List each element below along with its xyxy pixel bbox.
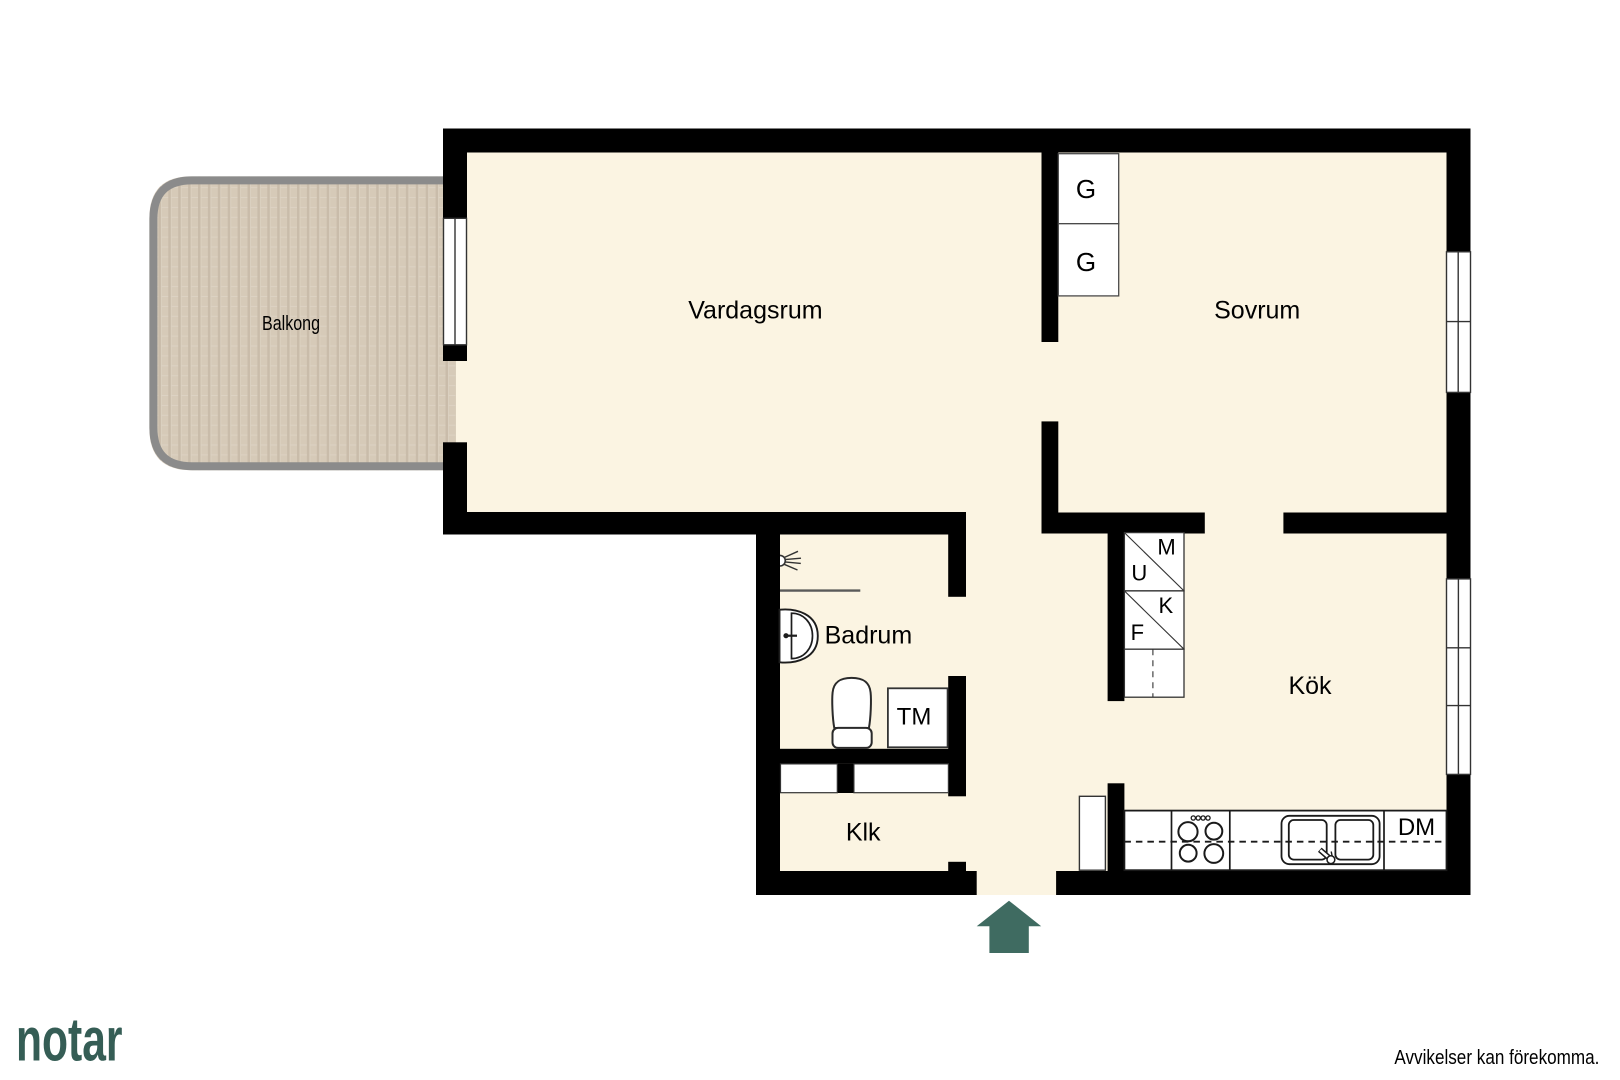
svg-text:Sovrum: Sovrum (1214, 297, 1300, 325)
svg-text:K: K (1158, 593, 1173, 618)
svg-text:M: M (1157, 535, 1175, 560)
svg-text:DM: DM (1398, 814, 1435, 841)
svg-text:F: F (1131, 620, 1144, 645)
svg-text:U: U (1131, 561, 1147, 586)
svg-text:TM: TM (897, 704, 932, 731)
svg-text:Klk: Klk (846, 818, 881, 846)
svg-text:Badrum: Badrum (825, 622, 913, 650)
svg-text:Balkong: Balkong (262, 313, 320, 335)
svg-text:G: G (1076, 174, 1096, 204)
svg-text:G: G (1076, 247, 1096, 277)
svg-text:Kök: Kök (1288, 672, 1332, 700)
svg-text:Avvikelser kan förekomma.: Avvikelser kan förekomma. (1394, 1047, 1599, 1069)
svg-text:Vardagsrum: Vardagsrum (688, 296, 822, 324)
svg-text:notar: notar (16, 1006, 123, 1074)
